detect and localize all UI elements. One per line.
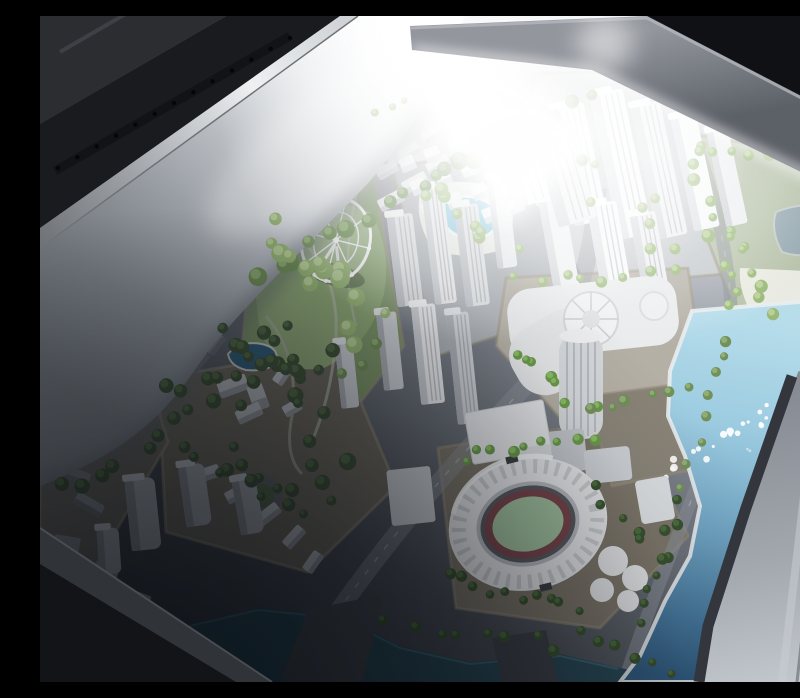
scene-canvas xyxy=(40,16,800,682)
photo-city-model xyxy=(40,16,800,682)
beam-glare xyxy=(577,16,633,72)
